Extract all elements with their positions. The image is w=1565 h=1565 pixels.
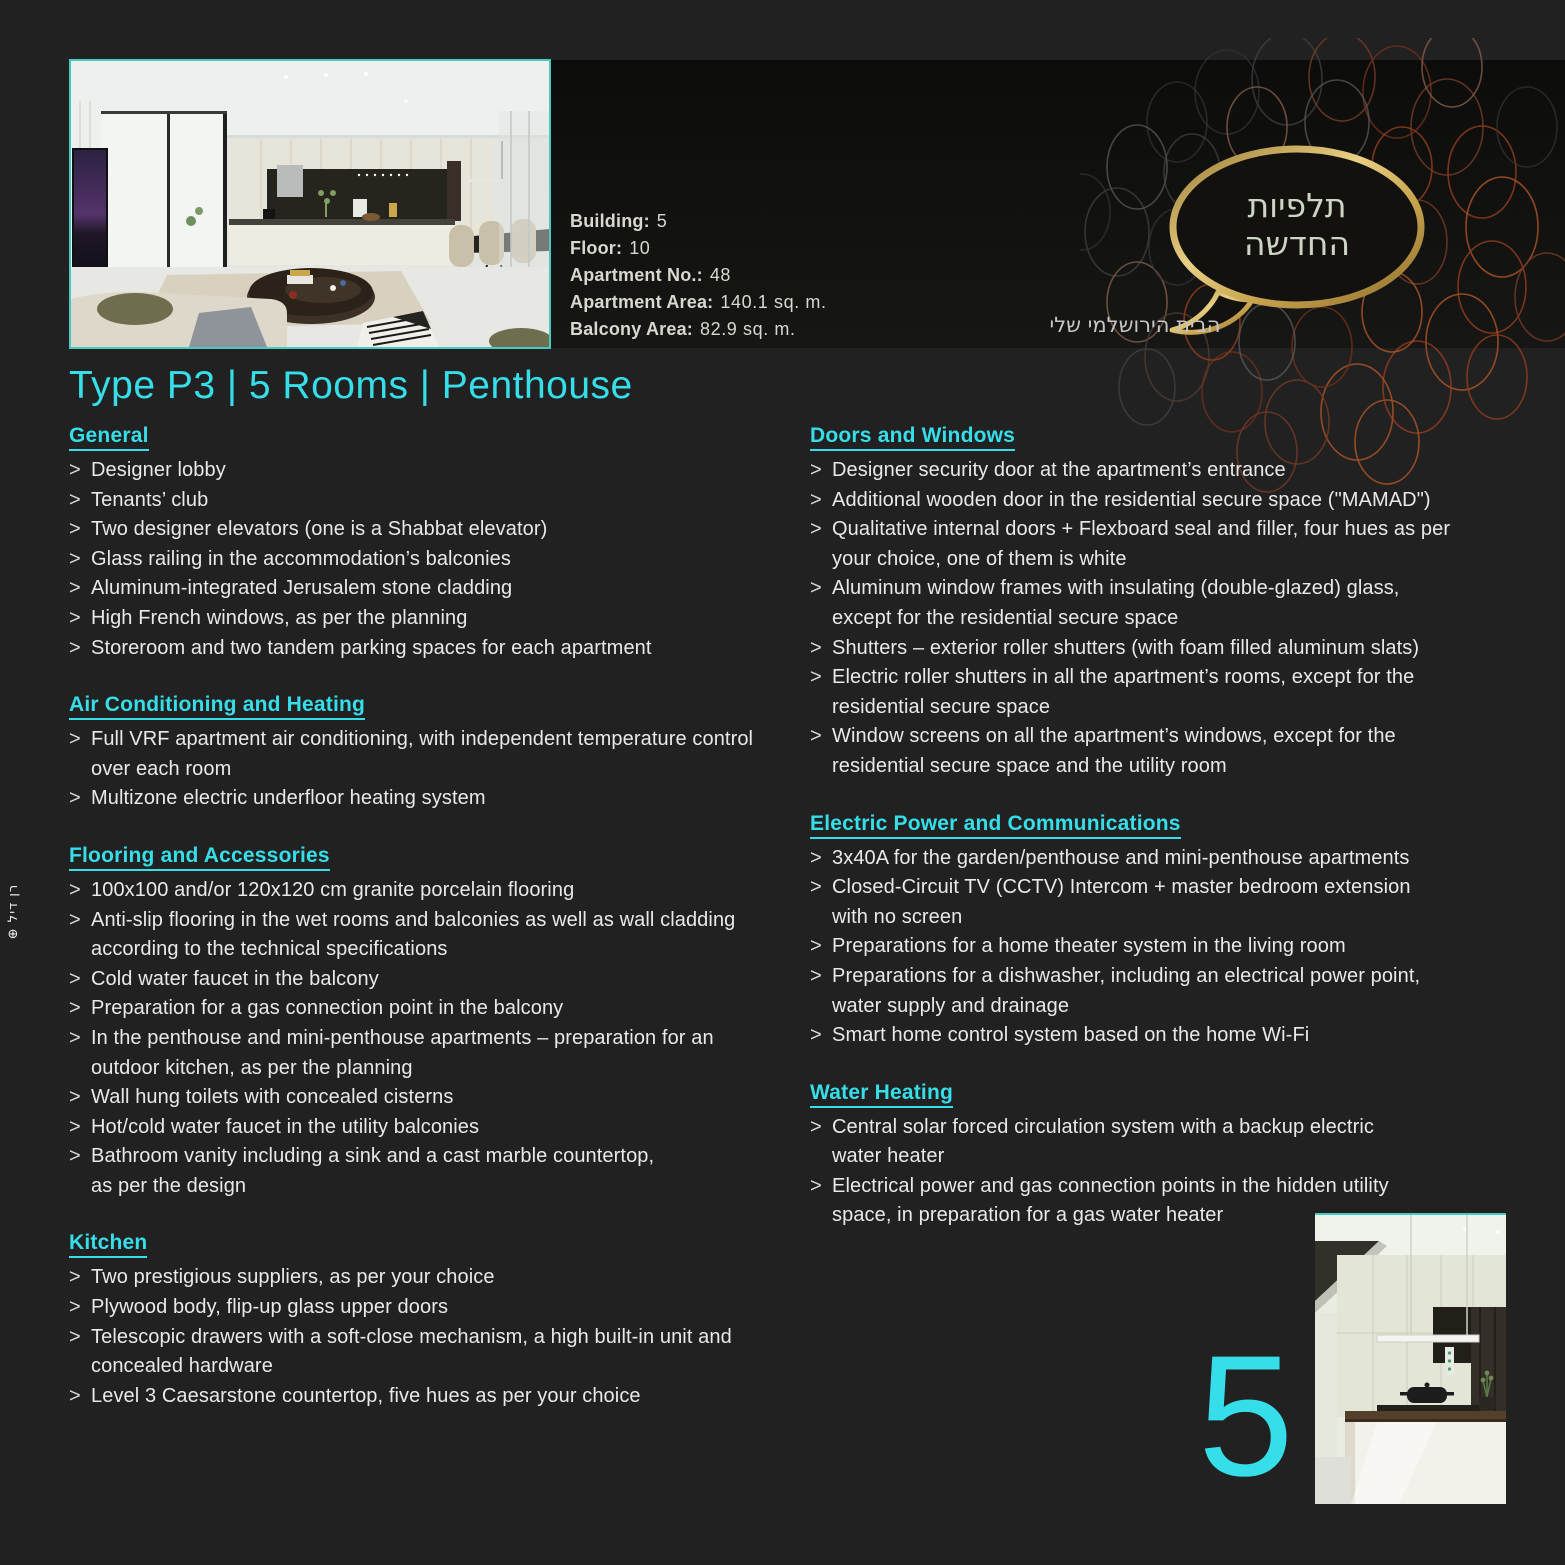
item-lines: High French windows, as per the planning bbox=[91, 604, 829, 634]
item-line: Preparations for a home theater system i… bbox=[832, 932, 1565, 962]
spec-section: Water Heating>Central solar forced circu… bbox=[810, 1081, 1565, 1231]
item-lines: Cold water faucet in the balcony bbox=[91, 965, 829, 995]
item-marker: > bbox=[69, 876, 91, 906]
item-lines: Anti-slip flooring in the wet rooms and … bbox=[91, 906, 829, 965]
item-marker: > bbox=[810, 722, 832, 781]
speech-bubble-outline-icon bbox=[1119, 349, 1175, 425]
item-line: over each room bbox=[91, 755, 829, 785]
speech-bubble-outline-icon bbox=[1147, 82, 1207, 162]
item-line: Cold water faucet in the balcony bbox=[91, 965, 829, 995]
spec-item: >100x100 and/or 120x120 cm granite porce… bbox=[69, 876, 829, 906]
meta-row: Balcony Area:82.9 sq. m. bbox=[570, 316, 827, 343]
item-line: your choice, one of them is white bbox=[832, 545, 1565, 575]
item-line: 100x100 and/or 120x120 cm granite porcel… bbox=[91, 876, 829, 906]
spec-item: >Hot/cold water faucet in the utility ba… bbox=[69, 1113, 829, 1143]
item-line: Glass railing in the accommodation’s bal… bbox=[91, 545, 829, 575]
item-line: Qualitative internal doors + Flexboard s… bbox=[832, 515, 1565, 545]
item-marker: > bbox=[69, 515, 91, 545]
item-marker: > bbox=[69, 1142, 91, 1201]
item-line: outdoor kitchen, as per the planning bbox=[91, 1054, 829, 1084]
section-heading: Air Conditioning and Heating bbox=[69, 693, 365, 720]
speech-bubble-outline-icon bbox=[1202, 352, 1262, 432]
item-line: Designer security door at the apartment’… bbox=[832, 456, 1565, 486]
item-line: Window screens on all the apartment’s wi… bbox=[832, 722, 1565, 752]
section-heading: Electric Power and Communications bbox=[810, 812, 1181, 839]
item-line: Anti-slip flooring in the wet rooms and … bbox=[91, 906, 829, 936]
spec-item: >Two prestigious suppliers, as per your … bbox=[69, 1263, 829, 1293]
spec-item: >Aluminum-integrated Jerusalem stone cla… bbox=[69, 574, 829, 604]
spec-item: >Tenants’ club bbox=[69, 486, 829, 516]
item-line: Shutters – exterior roller shutters (wit… bbox=[832, 634, 1565, 664]
spec-item: >Full VRF apartment air conditioning, wi… bbox=[69, 725, 829, 784]
kitchen-illustration bbox=[1315, 1215, 1506, 1504]
spec-section: Electric Power and Communications>3x40A … bbox=[810, 812, 1565, 1051]
item-marker: > bbox=[810, 1113, 832, 1172]
item-lines: Aluminum window frames with insulating (… bbox=[832, 574, 1565, 633]
item-line: Designer lobby bbox=[91, 456, 829, 486]
spec-section: Air Conditioning and Heating>Full VRF ap… bbox=[69, 693, 829, 814]
spec-item: >Electric roller shutters in all the apa… bbox=[810, 663, 1565, 722]
item-line: according to the technical specification… bbox=[91, 935, 829, 965]
spec-item: >Designer security door at the apartment… bbox=[810, 456, 1565, 486]
item-marker: > bbox=[69, 965, 91, 995]
item-line: Wall hung toilets with concealed cistern… bbox=[91, 1083, 829, 1113]
speech-bubble-outline-icon bbox=[1080, 174, 1110, 250]
item-lines: Multizone electric underfloor heating sy… bbox=[91, 784, 829, 814]
meta-row: Apartment Area:140.1 sq. m. bbox=[570, 289, 827, 316]
meta-value: 5 bbox=[657, 211, 668, 231]
meta-label: Balcony Area: bbox=[570, 319, 693, 339]
item-lines: Closed-Circuit TV (CCTV) Intercom + mast… bbox=[832, 873, 1565, 932]
item-lines: Central solar forced circulation system … bbox=[832, 1113, 1565, 1172]
item-marker: > bbox=[69, 604, 91, 634]
speech-bubble-outline-icon bbox=[1422, 38, 1482, 107]
item-line: with no screen bbox=[832, 903, 1565, 933]
item-line: except for the residential secure space bbox=[832, 604, 1565, 634]
item-line: High French windows, as per the planning bbox=[91, 604, 829, 634]
item-marker: > bbox=[810, 873, 832, 932]
item-line: Aluminum window frames with insulating (… bbox=[832, 574, 1565, 604]
item-line: In the penthouse and mini-penthouse apar… bbox=[91, 1024, 829, 1054]
item-line: Full VRF apartment air conditioning, wit… bbox=[91, 725, 829, 755]
spec-item: >Glass railing in the accommodation’s ba… bbox=[69, 545, 829, 575]
logo-tagline: הבית הירושלמי שלי bbox=[1040, 313, 1230, 337]
item-line: 3x40A for the garden/penthouse and mini-… bbox=[832, 844, 1565, 874]
item-line: water supply and drainage bbox=[832, 992, 1565, 1022]
item-lines: Storeroom and two tandem parking spaces … bbox=[91, 634, 829, 664]
spec-item: >Plywood body, flip-up glass upper doors bbox=[69, 1293, 829, 1323]
speech-bubble-outline-icon bbox=[1292, 307, 1352, 387]
spec-item: >Preparations for a dishwasher, includin… bbox=[810, 962, 1565, 1021]
spec-item: >Smart home control system based on the … bbox=[810, 1021, 1565, 1051]
spec-item: >3x40A for the garden/penthouse and mini… bbox=[810, 844, 1565, 874]
item-line: Multizone electric underfloor heating sy… bbox=[91, 784, 829, 814]
item-marker: > bbox=[69, 456, 91, 486]
meta-label: Floor: bbox=[570, 238, 622, 258]
speech-bubble-outline-icon bbox=[1497, 87, 1557, 167]
spec-item: >Storeroom and two tandem parking spaces… bbox=[69, 634, 829, 664]
item-marker: > bbox=[69, 1083, 91, 1113]
item-line: Electric roller shutters in all the apar… bbox=[832, 663, 1565, 693]
item-marker: > bbox=[810, 962, 832, 1021]
section-heading: Water Heating bbox=[810, 1081, 953, 1108]
item-marker: > bbox=[69, 1323, 91, 1382]
spec-item: >Closed-Circuit TV (CCTV) Intercom + mas… bbox=[810, 873, 1565, 932]
spec-item: >Shutters – exterior roller shutters (wi… bbox=[810, 634, 1565, 664]
spec-item: >Aluminum window frames with insulating … bbox=[810, 574, 1565, 633]
spec-item: >Telescopic drawers with a soft-close me… bbox=[69, 1323, 829, 1382]
item-marker: > bbox=[810, 932, 832, 962]
spec-section: Kitchen>Two prestigious suppliers, as pe… bbox=[69, 1231, 829, 1411]
spec-item: >Level 3 Caesarstone countertop, five hu… bbox=[69, 1382, 829, 1412]
item-marker: > bbox=[69, 1024, 91, 1083]
meta-value: 82.9 sq. m. bbox=[700, 319, 796, 339]
spec-column-right: Doors and Windows>Designer security door… bbox=[810, 424, 1565, 1261]
spec-column-left: General>Designer lobby>Tenants’ club>Two… bbox=[69, 424, 829, 1441]
item-lines: Two prestigious suppliers, as per your c… bbox=[91, 1263, 829, 1293]
item-marker: > bbox=[69, 725, 91, 784]
meta-label: Apartment Area: bbox=[570, 292, 713, 312]
item-marker: > bbox=[810, 515, 832, 574]
item-lines: Tenants’ club bbox=[91, 486, 829, 516]
meta-value: 140.1 sq. m. bbox=[720, 292, 826, 312]
item-marker: > bbox=[810, 1021, 832, 1051]
item-lines: Preparations for a home theater system i… bbox=[832, 932, 1565, 962]
item-marker: > bbox=[69, 1293, 91, 1323]
item-line: Two prestigious suppliers, as per your c… bbox=[91, 1263, 829, 1293]
item-lines: 3x40A for the garden/penthouse and mini-… bbox=[832, 844, 1565, 874]
spec-item: >Additional wooden door in the residenti… bbox=[810, 486, 1565, 516]
item-line: Level 3 Caesarstone countertop, five hue… bbox=[91, 1382, 829, 1412]
item-lines: Two designer elevators (one is a Shabbat… bbox=[91, 515, 829, 545]
item-line: Hot/cold water faucet in the utility bal… bbox=[91, 1113, 829, 1143]
item-lines: Hot/cold water faucet in the utility bal… bbox=[91, 1113, 829, 1143]
item-lines: Bathroom vanity including a sink and a c… bbox=[91, 1142, 829, 1201]
item-line: Telescopic drawers with a soft-close mec… bbox=[91, 1323, 829, 1353]
spec-item: >Anti-slip flooring in the wet rooms and… bbox=[69, 906, 829, 965]
item-lines: Aluminum-integrated Jerusalem stone clad… bbox=[91, 574, 829, 604]
item-line: Storeroom and two tandem parking spaces … bbox=[91, 634, 829, 664]
item-marker: > bbox=[810, 456, 832, 486]
item-marker: > bbox=[810, 844, 832, 874]
item-marker: > bbox=[69, 574, 91, 604]
item-marker: > bbox=[69, 1113, 91, 1143]
meta-value: 48 bbox=[710, 265, 731, 285]
item-line: residential secure space bbox=[832, 693, 1565, 723]
item-lines: Electric roller shutters in all the apar… bbox=[832, 663, 1565, 722]
item-lines: Shutters – exterior roller shutters (wit… bbox=[832, 634, 1565, 664]
logo-text-line2: החדשה bbox=[1187, 225, 1407, 263]
spec-item: >Preparation for a gas connection point … bbox=[69, 994, 829, 1024]
item-marker: > bbox=[810, 663, 832, 722]
meta-value: 10 bbox=[629, 238, 650, 258]
living-room-illustration bbox=[71, 61, 549, 347]
spec-item: >Designer lobby bbox=[69, 456, 829, 486]
item-line: Bathroom vanity including a sink and a c… bbox=[91, 1142, 829, 1172]
item-lines: Level 3 Caesarstone countertop, five hue… bbox=[91, 1382, 829, 1412]
item-marker: > bbox=[69, 906, 91, 965]
item-marker: > bbox=[69, 784, 91, 814]
apartment-meta: Building:5Floor:10Apartment No.:48Apartm… bbox=[570, 208, 827, 343]
meta-row: Building:5 bbox=[570, 208, 827, 235]
spec-section: Doors and Windows>Designer security door… bbox=[810, 424, 1565, 782]
item-line: residential secure space and the utility… bbox=[832, 752, 1565, 782]
item-lines: Preparation for a gas connection point i… bbox=[91, 994, 829, 1024]
spec-item: >Central solar forced circulation system… bbox=[810, 1113, 1565, 1172]
item-lines: Telescopic drawers with a soft-close mec… bbox=[91, 1323, 829, 1382]
item-lines: 100x100 and/or 120x120 cm granite porcel… bbox=[91, 876, 829, 906]
speech-bubble-outline-icon bbox=[1252, 38, 1322, 125]
item-lines: Designer security door at the apartment’… bbox=[832, 456, 1565, 486]
section-heading: Flooring and Accessories bbox=[69, 844, 330, 871]
meta-label: Apartment No.: bbox=[570, 265, 703, 285]
spec-item: >Qualitative internal doors + Flexboard … bbox=[810, 515, 1565, 574]
spec-item: >High French windows, as per the plannin… bbox=[69, 604, 829, 634]
spec-item: >Wall hung toilets with concealed cister… bbox=[69, 1083, 829, 1113]
spec-item: >Multizone electric underfloor heating s… bbox=[69, 784, 829, 814]
kitchen-photo bbox=[1315, 1213, 1506, 1504]
item-marker: > bbox=[810, 574, 832, 633]
item-marker: > bbox=[69, 545, 91, 575]
item-lines: Preparations for a dishwasher, including… bbox=[832, 962, 1565, 1021]
item-line: Preparations for a dishwasher, including… bbox=[832, 962, 1565, 992]
item-line: Two designer elevators (one is a Shabbat… bbox=[91, 515, 829, 545]
item-line: Central solar forced circulation system … bbox=[832, 1113, 1565, 1143]
item-lines: Wall hung toilets with concealed cistern… bbox=[91, 1083, 829, 1113]
item-line: Closed-Circuit TV (CCTV) Intercom + mast… bbox=[832, 873, 1565, 903]
item-lines: Designer lobby bbox=[91, 456, 829, 486]
logo-text-line1: תלפיות bbox=[1187, 187, 1407, 225]
item-marker: > bbox=[810, 1172, 832, 1231]
item-lines: In the penthouse and mini-penthouse apar… bbox=[91, 1024, 829, 1083]
item-marker: > bbox=[810, 486, 832, 516]
section-heading: General bbox=[69, 424, 149, 451]
spec-item: >Two designer elevators (one is a Shabba… bbox=[69, 515, 829, 545]
hero-photo bbox=[69, 59, 551, 349]
item-marker: > bbox=[69, 634, 91, 664]
item-lines: Plywood body, flip-up glass upper doors bbox=[91, 1293, 829, 1323]
item-marker: > bbox=[69, 486, 91, 516]
item-line: Aluminum-integrated Jerusalem stone clad… bbox=[91, 574, 829, 604]
item-line: Electrical power and gas connection poin… bbox=[832, 1172, 1565, 1202]
item-marker: > bbox=[69, 1263, 91, 1293]
page-number: 5 bbox=[1198, 1330, 1294, 1502]
section-heading: Kitchen bbox=[69, 1231, 147, 1258]
item-line: Tenants’ club bbox=[91, 486, 829, 516]
spec-item: >Bathroom vanity including a sink and a … bbox=[69, 1142, 829, 1201]
speech-bubble-outline-icon bbox=[1239, 304, 1295, 380]
item-marker: > bbox=[69, 994, 91, 1024]
item-marker: > bbox=[810, 634, 832, 664]
item-lines: Additional wooden door in the residentia… bbox=[832, 486, 1565, 516]
item-lines: Smart home control system based on the h… bbox=[832, 1021, 1565, 1051]
spec-item: >Window screens on all the apartment’s w… bbox=[810, 722, 1565, 781]
spec-item: >Cold water faucet in the balcony bbox=[69, 965, 829, 995]
item-lines: Full VRF apartment air conditioning, wit… bbox=[91, 725, 829, 784]
meta-label: Building: bbox=[570, 211, 650, 231]
item-marker: > bbox=[69, 1382, 91, 1412]
side-credit: רן דיל ⊕ bbox=[6, 884, 21, 939]
page-title: Type P3 | 5 Rooms | Penthouse bbox=[69, 364, 633, 408]
section-heading: Doors and Windows bbox=[810, 424, 1015, 451]
item-lines: Qualitative internal doors + Flexboard s… bbox=[832, 515, 1565, 574]
item-line: water heater bbox=[832, 1142, 1565, 1172]
spec-section: Flooring and Accessories>100x100 and/or … bbox=[69, 844, 829, 1202]
speech-bubble-outline-icon bbox=[1107, 125, 1167, 209]
item-line: Preparation for a gas connection point i… bbox=[91, 994, 829, 1024]
spec-section: General>Designer lobby>Tenants’ club>Two… bbox=[69, 424, 829, 663]
brochure-page: Building:5Floor:10Apartment No.:48Apartm… bbox=[0, 0, 1565, 1565]
item-line: as per the design bbox=[91, 1172, 829, 1202]
item-line: concealed hardware bbox=[91, 1352, 829, 1382]
item-line: Plywood body, flip-up glass upper doors bbox=[91, 1293, 829, 1323]
item-lines: Window screens on all the apartment’s wi… bbox=[832, 722, 1565, 781]
item-line: Smart home control system based on the h… bbox=[832, 1021, 1565, 1051]
spec-item: >Preparations for a home theater system … bbox=[810, 932, 1565, 962]
meta-row: Floor:10 bbox=[570, 235, 827, 262]
item-lines: Glass railing in the accommodation’s bal… bbox=[91, 545, 829, 575]
meta-row: Apartment No.:48 bbox=[570, 262, 827, 289]
item-line: Additional wooden door in the residentia… bbox=[832, 486, 1565, 516]
spec-item: >In the penthouse and mini-penthouse apa… bbox=[69, 1024, 829, 1083]
